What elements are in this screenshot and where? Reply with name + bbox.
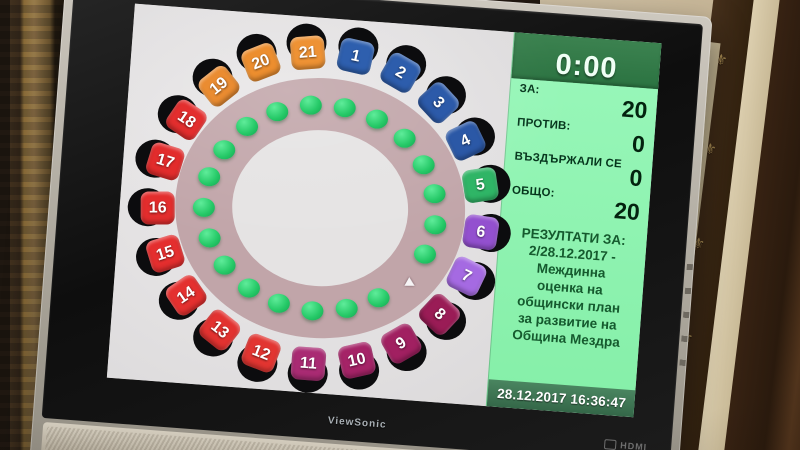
voting-system-screen: 123456789101112131415161718192021 0:00 З… <box>107 4 662 418</box>
seat-number: 18 <box>174 108 198 131</box>
result-description: РЕЗУЛТАТИ ЗА: 2/28.12.2017 - Междинна оц… <box>492 223 649 353</box>
hdmi-label: HDMI <box>620 440 648 450</box>
seat-number: 8 <box>430 306 447 324</box>
seat-5: 5 <box>461 167 500 205</box>
voting-circle: 123456789101112131415161718192021 <box>107 4 514 406</box>
seat-number: 13 <box>208 318 232 342</box>
seat-number: 17 <box>154 151 176 172</box>
seat-number: 11 <box>299 355 317 372</box>
seat-number: 5 <box>475 177 486 194</box>
seat-16: 16 <box>141 191 175 224</box>
seat-number: 4 <box>458 132 473 150</box>
monitor-bezel: 123456789101112131415161718192021 0:00 З… <box>42 0 703 450</box>
seat-number: 3 <box>430 94 448 111</box>
seat-number: 6 <box>475 223 486 240</box>
vote-timer: 0:00 <box>554 50 618 84</box>
seat-6: 6 <box>461 213 500 251</box>
seat-number: 10 <box>346 351 367 371</box>
seat-number: 15 <box>155 243 177 264</box>
seat-number: 20 <box>249 52 271 73</box>
seat-number: 1 <box>350 47 362 65</box>
seat-number: 2 <box>393 64 409 82</box>
seat-1: 1 <box>336 36 376 76</box>
seat-number: 19 <box>207 74 231 98</box>
seat-number: 16 <box>149 200 167 216</box>
seat-21: 21 <box>289 35 325 70</box>
results-panel: 0:00 ЗА: 20 ПРОТИВ: 0 ВЪЗДЪРЖАЛИ СЕ 0 <box>486 32 662 417</box>
council-chamber-photo: 123456789101112131415161718192021 0:00 З… <box>0 0 800 450</box>
seat-number: 7 <box>459 267 474 285</box>
datetime-bar: 28.12.2017 16:36:47 <box>487 379 637 417</box>
seat-number: 12 <box>250 342 272 363</box>
seat-number: 9 <box>394 334 410 352</box>
seat-number: 21 <box>298 44 317 61</box>
seat-11: 11 <box>290 346 326 381</box>
seat-number: 14 <box>175 284 199 307</box>
hdmi-icon <box>604 439 617 450</box>
tv-monitor: 123456789101112131415161718192021 0:00 З… <box>27 0 712 450</box>
